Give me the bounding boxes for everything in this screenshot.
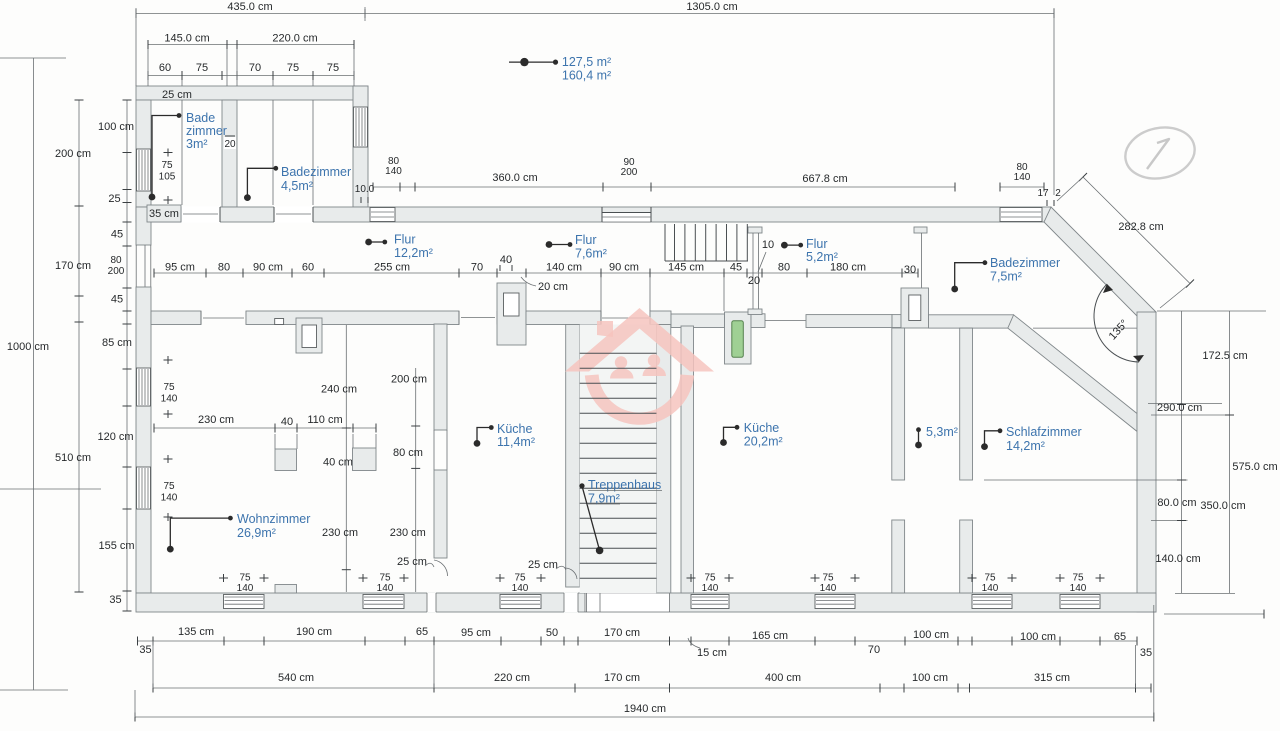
svg-text:80: 80 bbox=[218, 262, 230, 274]
svg-text:140: 140 bbox=[820, 583, 837, 594]
svg-text:127,5 m²: 127,5 m² bbox=[562, 55, 611, 69]
svg-text:75: 75 bbox=[514, 573, 526, 584]
svg-text:360.0 cm: 360.0 cm bbox=[492, 172, 537, 184]
svg-text:350.0 cm: 350.0 cm bbox=[1200, 500, 1245, 512]
svg-text:10: 10 bbox=[762, 239, 774, 251]
svg-text:110 cm: 110 cm bbox=[307, 414, 342, 426]
svg-text:160,4 m²: 160,4 m² bbox=[562, 69, 611, 83]
svg-text:45: 45 bbox=[111, 294, 123, 306]
svg-text:540 cm: 540 cm bbox=[278, 672, 314, 684]
svg-text:75: 75 bbox=[327, 62, 339, 74]
svg-text:140: 140 bbox=[702, 583, 719, 594]
svg-text:70: 70 bbox=[249, 62, 261, 74]
svg-text:80: 80 bbox=[778, 262, 790, 274]
svg-text:172.5 cm: 172.5 cm bbox=[1202, 350, 1247, 362]
svg-text:140: 140 bbox=[1014, 172, 1031, 183]
svg-text:75: 75 bbox=[984, 573, 996, 584]
svg-text:Küche: Küche bbox=[497, 422, 532, 436]
svg-text:282.8 cm: 282.8 cm bbox=[1118, 221, 1163, 233]
svg-text:5,3m²: 5,3m² bbox=[926, 425, 958, 439]
svg-text:35: 35 bbox=[109, 594, 121, 606]
svg-text:Flur: Flur bbox=[394, 233, 416, 247]
svg-text:Flur: Flur bbox=[806, 237, 828, 251]
svg-text:230 cm: 230 cm bbox=[390, 527, 426, 539]
svg-text:75: 75 bbox=[1072, 573, 1084, 584]
svg-text:140: 140 bbox=[161, 394, 178, 405]
svg-text:315 cm: 315 cm bbox=[1034, 672, 1070, 684]
svg-text:5,2m²: 5,2m² bbox=[806, 250, 838, 264]
svg-text:155 cm: 155 cm bbox=[98, 540, 134, 552]
svg-text:40: 40 bbox=[500, 254, 512, 266]
svg-text:20: 20 bbox=[224, 139, 236, 150]
svg-text:35: 35 bbox=[1140, 647, 1152, 659]
svg-text:40 cm: 40 cm bbox=[323, 457, 353, 469]
svg-text:70: 70 bbox=[471, 262, 483, 274]
svg-text:20: 20 bbox=[748, 275, 760, 287]
svg-text:45: 45 bbox=[111, 229, 123, 241]
svg-text:140: 140 bbox=[982, 583, 999, 594]
svg-text:145.0 cm: 145.0 cm bbox=[164, 33, 209, 45]
svg-text:200: 200 bbox=[108, 266, 125, 277]
svg-text:255 cm: 255 cm bbox=[374, 262, 410, 274]
svg-text:80 cm: 80 cm bbox=[393, 447, 423, 459]
svg-text:165 cm: 165 cm bbox=[752, 630, 788, 642]
svg-text:200: 200 bbox=[621, 167, 638, 178]
svg-text:7,5m²: 7,5m² bbox=[990, 270, 1022, 284]
svg-text:100 cm: 100 cm bbox=[98, 121, 134, 133]
svg-text:Bade: Bade bbox=[186, 111, 215, 125]
svg-text:12,2m²: 12,2m² bbox=[394, 246, 433, 260]
svg-text:510 cm: 510 cm bbox=[55, 452, 91, 464]
svg-text:zimmer: zimmer bbox=[186, 124, 227, 138]
svg-text:75: 75 bbox=[379, 573, 391, 584]
svg-text:60: 60 bbox=[302, 262, 314, 274]
svg-text:7,9m²: 7,9m² bbox=[588, 492, 620, 506]
svg-text:65: 65 bbox=[1114, 631, 1126, 643]
svg-text:140: 140 bbox=[1070, 583, 1087, 594]
svg-text:667.8 cm: 667.8 cm bbox=[802, 173, 847, 185]
svg-text:Badezimmer: Badezimmer bbox=[990, 256, 1060, 270]
svg-text:25: 25 bbox=[108, 193, 120, 205]
svg-text:220.0 cm: 220.0 cm bbox=[272, 33, 317, 45]
svg-text:75: 75 bbox=[196, 62, 208, 74]
svg-text:25 cm: 25 cm bbox=[162, 89, 192, 101]
svg-text:140: 140 bbox=[512, 583, 529, 594]
svg-text:50: 50 bbox=[546, 627, 558, 639]
svg-text:120 cm: 120 cm bbox=[97, 431, 133, 443]
svg-text:140: 140 bbox=[237, 583, 254, 594]
svg-text:20,2m²: 20,2m² bbox=[744, 435, 783, 449]
svg-text:95 cm: 95 cm bbox=[165, 262, 195, 274]
svg-text:575.0 cm: 575.0 cm bbox=[1232, 461, 1277, 473]
svg-text:10.0: 10.0 bbox=[355, 184, 375, 195]
svg-text:14,2m²: 14,2m² bbox=[1006, 439, 1045, 453]
svg-text:2: 2 bbox=[1055, 188, 1061, 199]
svg-text:1940 cm: 1940 cm bbox=[624, 703, 666, 715]
svg-text:140.0 cm: 140.0 cm bbox=[1155, 553, 1200, 565]
svg-text:220 cm: 220 cm bbox=[494, 672, 530, 684]
svg-text:75: 75 bbox=[163, 382, 175, 393]
svg-text:435.0 cm: 435.0 cm bbox=[227, 1, 272, 13]
svg-text:135 cm: 135 cm bbox=[178, 626, 214, 638]
svg-text:25 cm: 25 cm bbox=[528, 559, 558, 571]
svg-text:25 cm: 25 cm bbox=[397, 556, 427, 568]
svg-text:240 cm: 240 cm bbox=[321, 384, 357, 396]
svg-text:Wohnzimmer: Wohnzimmer bbox=[237, 512, 310, 526]
svg-text:40: 40 bbox=[281, 416, 293, 428]
svg-text:75: 75 bbox=[161, 160, 173, 171]
svg-text:230 cm: 230 cm bbox=[198, 414, 234, 426]
svg-text:65: 65 bbox=[416, 626, 428, 638]
svg-text:140: 140 bbox=[377, 583, 394, 594]
svg-text:Flur: Flur bbox=[575, 233, 597, 247]
svg-text:35 cm: 35 cm bbox=[149, 208, 179, 220]
svg-text:17: 17 bbox=[1037, 188, 1049, 199]
svg-text:11,4m²: 11,4m² bbox=[497, 435, 535, 449]
svg-text:4,5m²: 4,5m² bbox=[281, 179, 313, 193]
svg-text:15 cm: 15 cm bbox=[697, 647, 727, 659]
svg-text:85 cm: 85 cm bbox=[102, 337, 132, 349]
svg-text:170 cm: 170 cm bbox=[604, 672, 640, 684]
svg-text:80.0 cm: 80.0 cm bbox=[1157, 497, 1196, 509]
svg-text:20 cm: 20 cm bbox=[538, 281, 568, 293]
svg-text:100 cm: 100 cm bbox=[913, 629, 949, 641]
svg-text:1000 cm: 1000 cm bbox=[7, 341, 49, 353]
svg-text:170 cm: 170 cm bbox=[604, 627, 640, 639]
svg-text:140 cm: 140 cm bbox=[546, 262, 582, 274]
svg-text:75: 75 bbox=[704, 573, 716, 584]
svg-text:140: 140 bbox=[385, 166, 402, 177]
svg-text:290.0 cm: 290.0 cm bbox=[1157, 402, 1202, 414]
svg-text:100 cm: 100 cm bbox=[1020, 631, 1056, 643]
svg-text:35: 35 bbox=[139, 644, 151, 656]
svg-text:100 cm: 100 cm bbox=[912, 672, 948, 684]
svg-text:170 cm: 170 cm bbox=[55, 260, 91, 272]
svg-text:95 cm: 95 cm bbox=[461, 627, 491, 639]
svg-text:75: 75 bbox=[163, 481, 175, 492]
svg-text:145 cm: 145 cm bbox=[668, 262, 704, 274]
svg-text:80: 80 bbox=[110, 255, 122, 266]
svg-text:45: 45 bbox=[730, 262, 742, 274]
svg-text:Küche: Küche bbox=[744, 421, 779, 435]
svg-text:70: 70 bbox=[868, 644, 880, 656]
svg-text:30: 30 bbox=[904, 264, 916, 276]
svg-text:140: 140 bbox=[161, 493, 178, 504]
svg-text:200 cm: 200 cm bbox=[55, 148, 91, 160]
svg-text:Badezimmer: Badezimmer bbox=[281, 165, 351, 179]
svg-text:90 cm: 90 cm bbox=[609, 262, 639, 274]
svg-text:60: 60 bbox=[159, 62, 171, 74]
svg-text:3m²: 3m² bbox=[186, 137, 208, 151]
svg-text:Schlafzimmer: Schlafzimmer bbox=[1006, 425, 1082, 439]
svg-text:75: 75 bbox=[239, 573, 251, 584]
svg-text:230 cm: 230 cm bbox=[322, 527, 358, 539]
svg-text:90 cm: 90 cm bbox=[253, 262, 283, 274]
svg-text:7,6m²: 7,6m² bbox=[575, 247, 607, 261]
svg-text:190 cm: 190 cm bbox=[296, 626, 332, 638]
svg-text:105: 105 bbox=[159, 172, 176, 183]
svg-text:200 cm: 200 cm bbox=[391, 374, 427, 386]
svg-text:400 cm: 400 cm bbox=[765, 672, 801, 684]
svg-text:26,9m²: 26,9m² bbox=[237, 526, 276, 540]
svg-text:75: 75 bbox=[287, 62, 299, 74]
svg-text:1305.0 cm: 1305.0 cm bbox=[686, 1, 737, 13]
svg-text:75: 75 bbox=[822, 573, 834, 584]
svg-text:Treppenhaus: Treppenhaus bbox=[588, 478, 661, 492]
